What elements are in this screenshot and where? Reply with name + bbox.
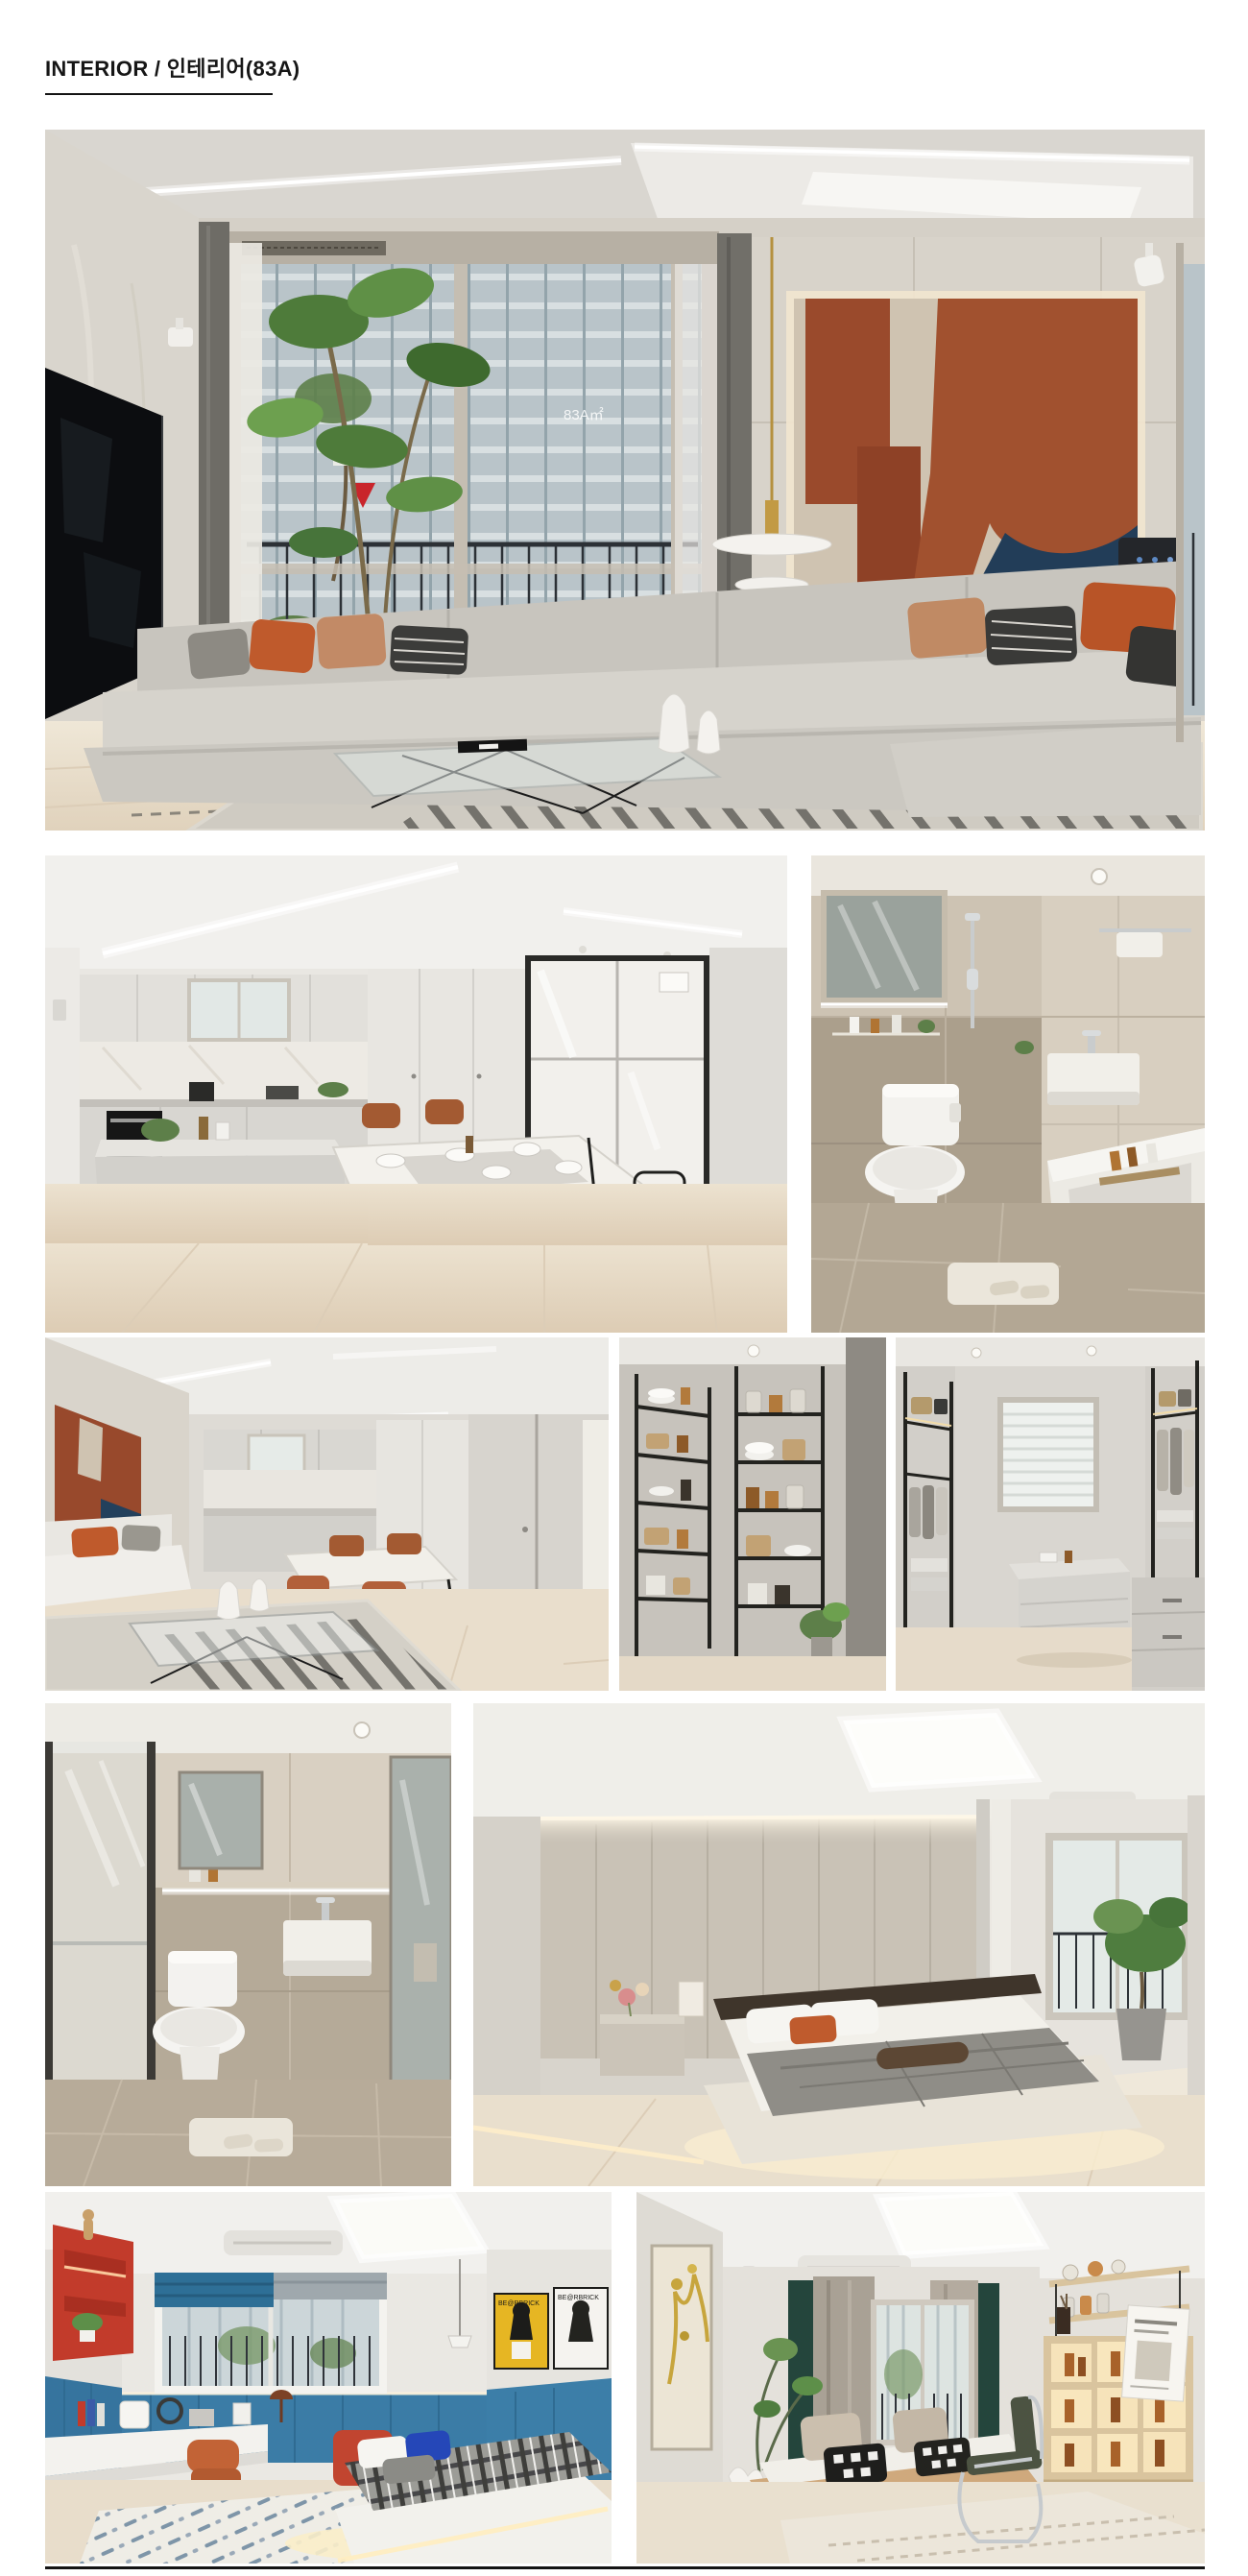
floor-shadow	[1017, 1652, 1132, 1668]
downlight-1	[972, 1348, 981, 1358]
window	[155, 2273, 387, 2394]
living-room-illustration: 83A㎡	[45, 130, 1205, 831]
diffuser	[1057, 2307, 1070, 2334]
floor	[619, 1656, 886, 1691]
photo-bathroom-guest	[45, 1703, 451, 2186]
ceiling	[45, 855, 787, 969]
ceiling	[811, 855, 1205, 896]
kids-room-illustration: BE@RBRICK BE@RBRICK	[45, 2192, 612, 2564]
pantry-illustration	[619, 1337, 886, 1691]
footer-rule	[45, 2566, 1205, 2569]
right-mirror-panel	[391, 1757, 451, 2083]
downlight-2	[1087, 1346, 1096, 1356]
poster-title-yellow: BE@RBRICK	[498, 2300, 540, 2307]
photo-study-room	[636, 2192, 1205, 2564]
kitchen-illustration	[45, 855, 787, 1333]
brochure-page: INTERIOR / 인테리어(83A)	[0, 0, 1248, 2576]
right-dark-wall	[846, 1337, 886, 1691]
guest-bathroom-illustration	[45, 1703, 451, 2186]
downlight	[748, 1345, 759, 1357]
photo-kids-room: BE@RBRICK BE@RBRICK	[45, 2192, 612, 2564]
page-title: INTERIOR / 인테리어(83A)	[45, 52, 300, 83]
living-kitchen-illustration	[45, 1337, 609, 1691]
window-area-decal: 83A㎡	[564, 407, 604, 423]
title-underline	[45, 93, 273, 95]
photo-bathroom-main	[811, 855, 1205, 1333]
leaning-poster	[1122, 2305, 1190, 2401]
photo-bedroom-master	[473, 1703, 1205, 2186]
photo-pantry	[619, 1337, 886, 1691]
floor-and-rug	[636, 2482, 1205, 2564]
dressing-room-illustration	[896, 1337, 1205, 1691]
study-illustration	[636, 2192, 1205, 2564]
mirror	[180, 1772, 262, 1868]
drawer-chest	[1132, 1577, 1205, 1687]
bedroom-illustration	[473, 1703, 1205, 2186]
bathroom-illustration	[811, 855, 1205, 1333]
photo-dressing-room	[896, 1337, 1205, 1691]
photo-living-room-main: 83A㎡	[45, 130, 1205, 831]
floor	[45, 1184, 787, 1333]
photo-living-kitchen-view	[45, 1337, 609, 1691]
photo-kitchen-dining	[45, 855, 787, 1333]
corner-window-sliver	[1176, 243, 1205, 742]
poster-title-white: BE@RBRICK	[558, 2295, 599, 2301]
ceiling	[896, 1337, 1205, 1366]
floor	[45, 2080, 451, 2186]
bathroom-floor	[811, 1203, 1205, 1333]
curtain	[1188, 1795, 1205, 2112]
